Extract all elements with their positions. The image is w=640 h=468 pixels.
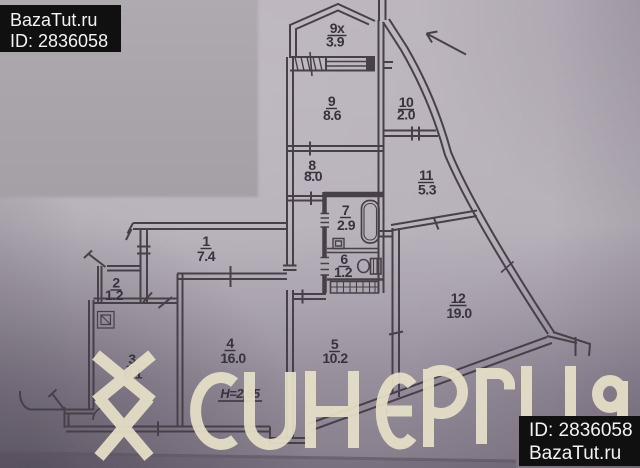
svg-text:8.6: 8.6 xyxy=(323,107,342,123)
svg-text:7: 7 xyxy=(342,202,350,218)
svg-text:5.3: 5.3 xyxy=(418,182,437,198)
svg-text:4: 4 xyxy=(226,335,234,351)
svg-text:8.0: 8.0 xyxy=(304,168,323,184)
svg-text:16.0: 16.0 xyxy=(220,350,246,366)
svg-text:10.2: 10.2 xyxy=(322,350,348,366)
svg-text:7.4: 7.4 xyxy=(197,248,216,264)
svg-text:19.0: 19.0 xyxy=(446,305,472,321)
svg-text:2.9: 2.9 xyxy=(337,217,356,233)
svg-text:1: 1 xyxy=(202,233,210,249)
svg-text:12: 12 xyxy=(451,290,466,306)
